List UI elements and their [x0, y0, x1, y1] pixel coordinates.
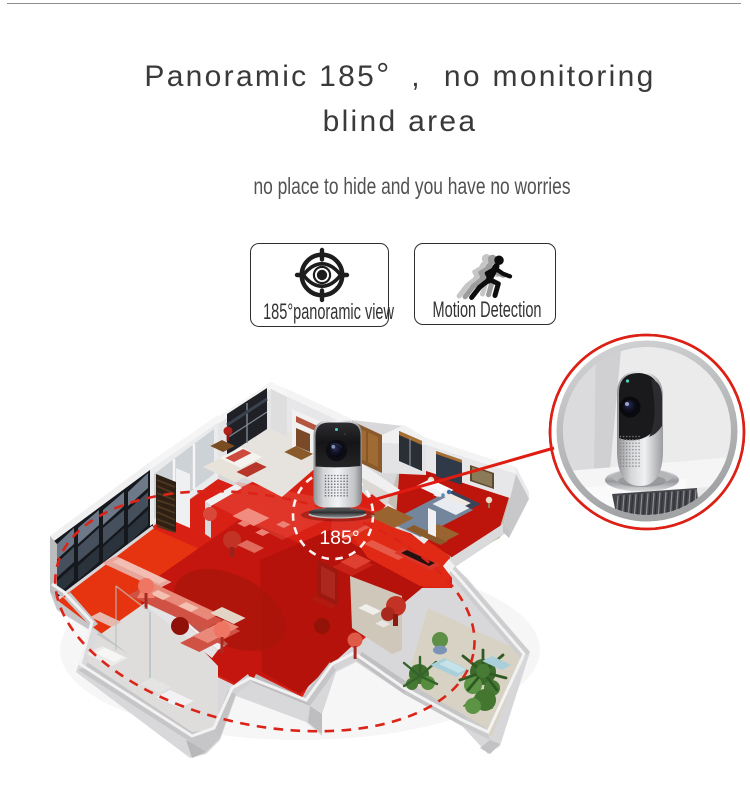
svg-text:185°: 185°: [319, 527, 359, 549]
